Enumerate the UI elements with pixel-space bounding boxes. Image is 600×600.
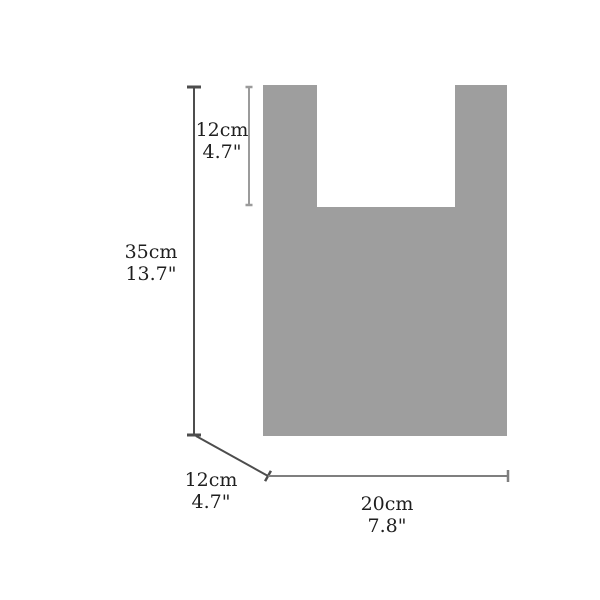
bag-dimension-diagram: 12cm 4.7" 35cm 13.7" 12cm 4.7" 20cm 7.8" — [0, 0, 600, 600]
diagram-canvas — [0, 0, 600, 600]
width-label: 20cm 7.8" — [361, 493, 414, 537]
depth-label: 12cm 4.7" — [185, 469, 238, 513]
total-height-label: 35cm 13.7" — [125, 241, 178, 285]
total-height-cm: 35cm — [125, 241, 178, 263]
depth-inch: 4.7" — [185, 491, 238, 513]
handle-height-inch: 4.7" — [196, 141, 249, 163]
width-inch: 7.8" — [361, 515, 414, 537]
handle-height-label: 12cm 4.7" — [196, 119, 249, 163]
bag-shape — [263, 85, 507, 436]
total-height-inch: 13.7" — [125, 263, 178, 285]
width-cm: 20cm — [361, 493, 414, 515]
depth-cm: 12cm — [185, 469, 238, 491]
handle-height-cm: 12cm — [196, 119, 249, 141]
